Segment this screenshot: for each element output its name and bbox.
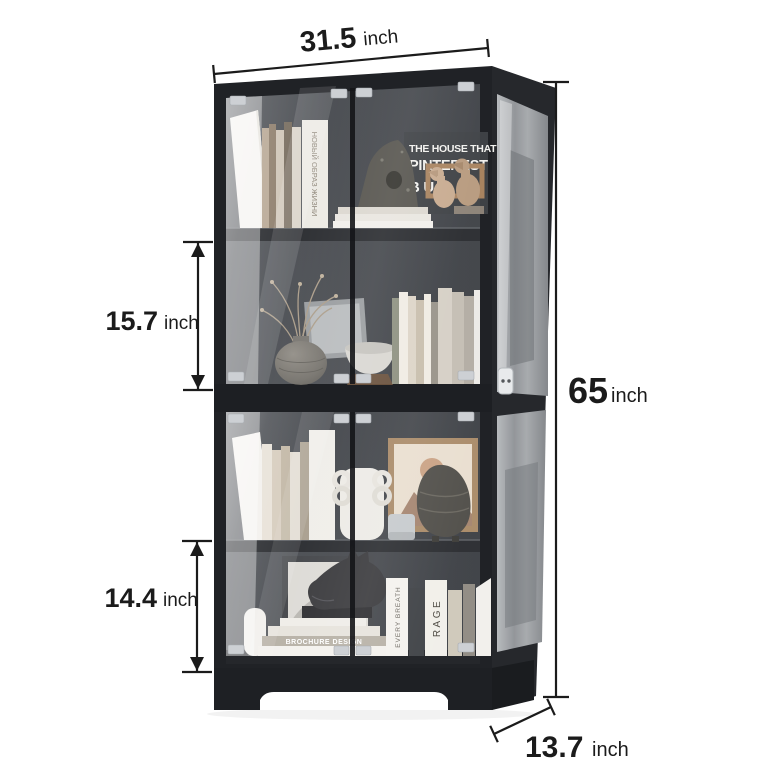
- door-bracket: [228, 414, 244, 423]
- door-bracket: [334, 374, 349, 383]
- base-arch-cutout: [260, 692, 448, 710]
- product-dimension-diagram: НОВЫЙ ОБРАЗ ЖИЗНИ THE HOUSE THAT PINTERE…: [0, 0, 768, 768]
- arrowhead-up: [190, 542, 204, 556]
- middle-divider: [214, 384, 492, 412]
- dim-depth-tick: [490, 726, 498, 742]
- side-glass-silhouette: [505, 462, 538, 628]
- door-bracket: [228, 645, 244, 654]
- door-seam-upper: [350, 88, 355, 384]
- dim-depth-tick: [547, 699, 555, 715]
- dim-upper-shelf-value: 15.7: [105, 306, 158, 336]
- door-bracket: [334, 646, 349, 655]
- door-bracket: [230, 96, 246, 105]
- glass-lower-left-reflection: [226, 412, 260, 656]
- door-bracket: [458, 643, 474, 652]
- door-bracket: [458, 412, 474, 421]
- dim-upper-shelf-unit: inch: [164, 313, 199, 334]
- arrowhead-down: [191, 375, 205, 389]
- dim-lower-shelf-value: 14.4: [104, 583, 157, 613]
- door-handle: [498, 368, 513, 394]
- door-bracket: [331, 89, 347, 98]
- side-glass-silhouette: [510, 150, 534, 366]
- door-handle-dot: [501, 379, 504, 382]
- dim-height-unit: inch: [611, 385, 648, 407]
- dim-width-tick: [213, 65, 215, 83]
- dim-width-value: 31.5: [299, 22, 358, 59]
- door-bracket: [458, 82, 474, 91]
- dim-depth-unit: inch: [592, 739, 629, 761]
- cabinet-diagram-svg: НОВЫЙ ОБРАЗ ЖИЗНИ THE HOUSE THAT PINTERE…: [0, 0, 768, 768]
- glass-doors: [226, 84, 480, 656]
- dim-lower-shelf-unit: inch: [163, 590, 198, 611]
- door-bracket: [458, 371, 474, 380]
- door-bracket: [356, 88, 372, 97]
- door-bracket: [356, 414, 371, 423]
- dim-height-value: 65: [568, 370, 608, 411]
- door-seam-lower: [350, 412, 355, 656]
- dim-depth-value: 13.7: [525, 731, 583, 764]
- arrowhead-up: [191, 243, 205, 257]
- base-side: [492, 660, 534, 710]
- door-bracket: [356, 374, 371, 383]
- door-handle-dot: [507, 379, 510, 382]
- arrowhead-down: [190, 657, 204, 671]
- dim-width-unit: inch: [362, 26, 399, 50]
- door-bracket: [228, 372, 244, 381]
- dim-width-tick: [487, 39, 489, 57]
- door-bracket: [356, 646, 371, 655]
- door-bracket: [334, 414, 349, 423]
